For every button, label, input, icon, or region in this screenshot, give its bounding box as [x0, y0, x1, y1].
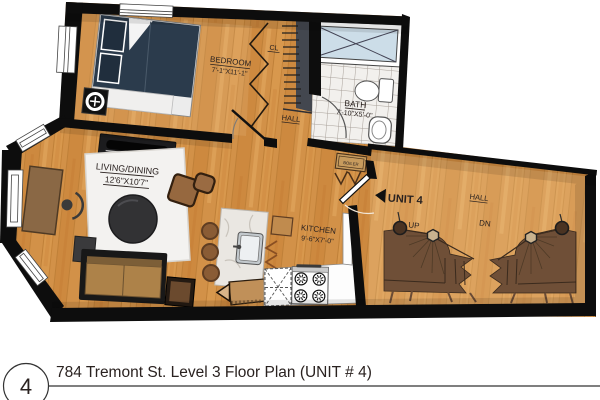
- svg-text:784 Tremont St. Level 3 Floor: 784 Tremont St. Level 3 Floor Plan (UNIT…: [56, 364, 372, 381]
- svg-text:DN: DN: [479, 218, 492, 228]
- svg-text:UNIT 4: UNIT 4: [387, 193, 423, 207]
- svg-text:4: 4: [20, 374, 32, 399]
- svg-text:UP: UP: [408, 220, 420, 230]
